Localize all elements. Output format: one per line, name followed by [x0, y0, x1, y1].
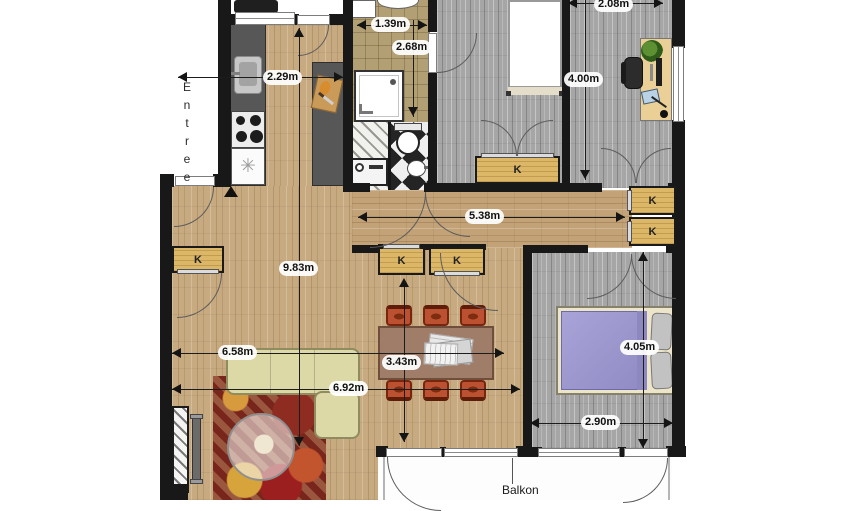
arrowhead [654, 0, 663, 8]
sofa-cushion-line [314, 350, 315, 393]
measure-bath-depth: 2.68m [392, 40, 431, 55]
kitchen-threshold-arrow [224, 186, 238, 197]
measure-living-width-upper: 6.58m [218, 345, 257, 360]
bedroom3-balcony-window [538, 448, 620, 457]
arrowhead [568, 0, 577, 8]
arrowhead [530, 418, 539, 428]
entree-label: Entree [180, 80, 194, 180]
bed-post [506, 91, 511, 96]
arrowhead [638, 252, 648, 261]
arrowhead [664, 418, 673, 428]
arrowhead [358, 212, 367, 222]
arrowhead [357, 20, 366, 30]
closet-sill [627, 221, 632, 242]
stove-burner [250, 115, 261, 126]
closet-label: K [649, 226, 657, 238]
fridge-freezer: ✳ [231, 148, 265, 185]
dining-chair [386, 305, 412, 326]
dining-chair [423, 305, 449, 326]
monitor [656, 58, 662, 86]
arrowhead [616, 212, 625, 222]
keyboard [650, 64, 653, 81]
balkon-leader-line [512, 458, 513, 484]
bedroom3-balcony-door [624, 448, 668, 457]
arrowhead [418, 20, 427, 30]
kitchen-faucet [231, 72, 240, 75]
washing-machine [350, 158, 388, 186]
arrowhead [580, 170, 590, 179]
tv-soundbar [192, 417, 201, 481]
wall-toilet-left [388, 122, 391, 190]
office-chair-back [621, 62, 626, 84]
arrowhead [399, 433, 409, 442]
tv-soundbar-cap [190, 479, 203, 484]
closet-sill [627, 190, 632, 211]
wall-hall-bottom-b [532, 245, 588, 253]
measure-office-depth: 4.00m [564, 72, 603, 87]
measure-line [585, 0, 586, 180]
sofa-cushion-line [270, 350, 271, 393]
measure-line [299, 28, 300, 446]
measure-line [178, 77, 343, 78]
office-window [673, 46, 684, 122]
arrowhead [408, 107, 418, 116]
tv-soundbar-cap [190, 414, 203, 419]
dining-chair [460, 380, 486, 401]
closet-east-bottom: K [629, 217, 676, 246]
arrowhead [399, 278, 409, 287]
arrowhead [294, 437, 304, 446]
wall-east-top [672, 0, 685, 48]
dining-chair [423, 380, 449, 401]
measure-living-depth: 9.83m [279, 261, 318, 276]
measure-dining-depth: 3.43m [382, 355, 421, 370]
wall-bed1-office [562, 0, 570, 184]
round-side-table [227, 413, 295, 481]
floor-plan: K K K K K K ✳ [0, 0, 850, 500]
living-balcony-door [386, 448, 442, 457]
sofa-chaise [314, 391, 360, 439]
measure-bedroom-width: 2.90m [581, 415, 620, 430]
closet-label: K [649, 195, 657, 207]
wall-balcony-f [666, 446, 686, 457]
pillow [650, 351, 673, 389]
washing-machine-dial [355, 163, 364, 172]
kitchen-balcony-door [297, 15, 330, 25]
closet-label: K [194, 254, 202, 266]
desk-lamp-head [660, 110, 668, 118]
wall-bath-bed1-bottom [428, 72, 437, 184]
wall-hall-top-a [352, 183, 370, 192]
measure-living-width-lower: 6.92m [329, 381, 368, 396]
living-balcony-door-arc [387, 457, 441, 511]
wall-kitchen-left [218, 0, 231, 178]
living-balcony-window [444, 448, 518, 457]
closet-east-top: K [629, 186, 676, 215]
arrowhead [172, 348, 181, 358]
arrowhead [495, 348, 504, 358]
arrowhead [334, 72, 343, 82]
wall-hall-top-b [424, 183, 602, 192]
measure-line [413, 20, 414, 117]
measure-office-width: 2.08m [594, 0, 633, 12]
wall-bath-left [343, 0, 353, 192]
arrowhead [638, 439, 648, 448]
stove-burner [250, 130, 263, 143]
wall-southwest-stub [160, 484, 188, 500]
balcony-rail-right [668, 457, 670, 500]
toilet-bowl [396, 130, 420, 155]
stove-burner [236, 116, 245, 125]
single-bed [508, 0, 562, 95]
arrowhead [294, 28, 304, 37]
measure-bath-width: 1.39m [371, 17, 410, 32]
dining-chair [386, 380, 412, 401]
closet-label: K [398, 255, 406, 267]
kitchen-window [235, 12, 295, 25]
wall-kitchen-top-c [329, 14, 345, 25]
shower-drain [390, 79, 396, 85]
measure-bedroom-depth: 4.05m [620, 340, 659, 355]
stove-burner [236, 131, 247, 142]
shower-handle [359, 104, 373, 114]
bathroom-bedroom1-door [428, 33, 437, 73]
kitchen-sink-bowl [239, 62, 257, 86]
newspaper [424, 342, 459, 365]
arrowhead [172, 384, 181, 394]
wall-bath-bed1-top [428, 0, 437, 32]
bath-vanity [350, 0, 376, 18]
measure-hall-length: 5.38m [465, 209, 504, 224]
arrowhead [511, 384, 520, 394]
wall-west [160, 185, 172, 500]
single-bed-foot [508, 86, 562, 95]
office-chair [624, 57, 643, 89]
wall-hall-bottom-c [666, 245, 676, 253]
washing-machine-panel [369, 165, 383, 169]
closet-bedroom1: K [475, 156, 560, 184]
closet-hall-a: K [378, 247, 425, 275]
measure-kitchen-width: 2.29m [263, 70, 302, 85]
balcony-rail-left [383, 457, 385, 500]
closet-label: K [514, 164, 522, 176]
balkon-label: Balkon [502, 483, 539, 497]
radiator [172, 406, 189, 493]
